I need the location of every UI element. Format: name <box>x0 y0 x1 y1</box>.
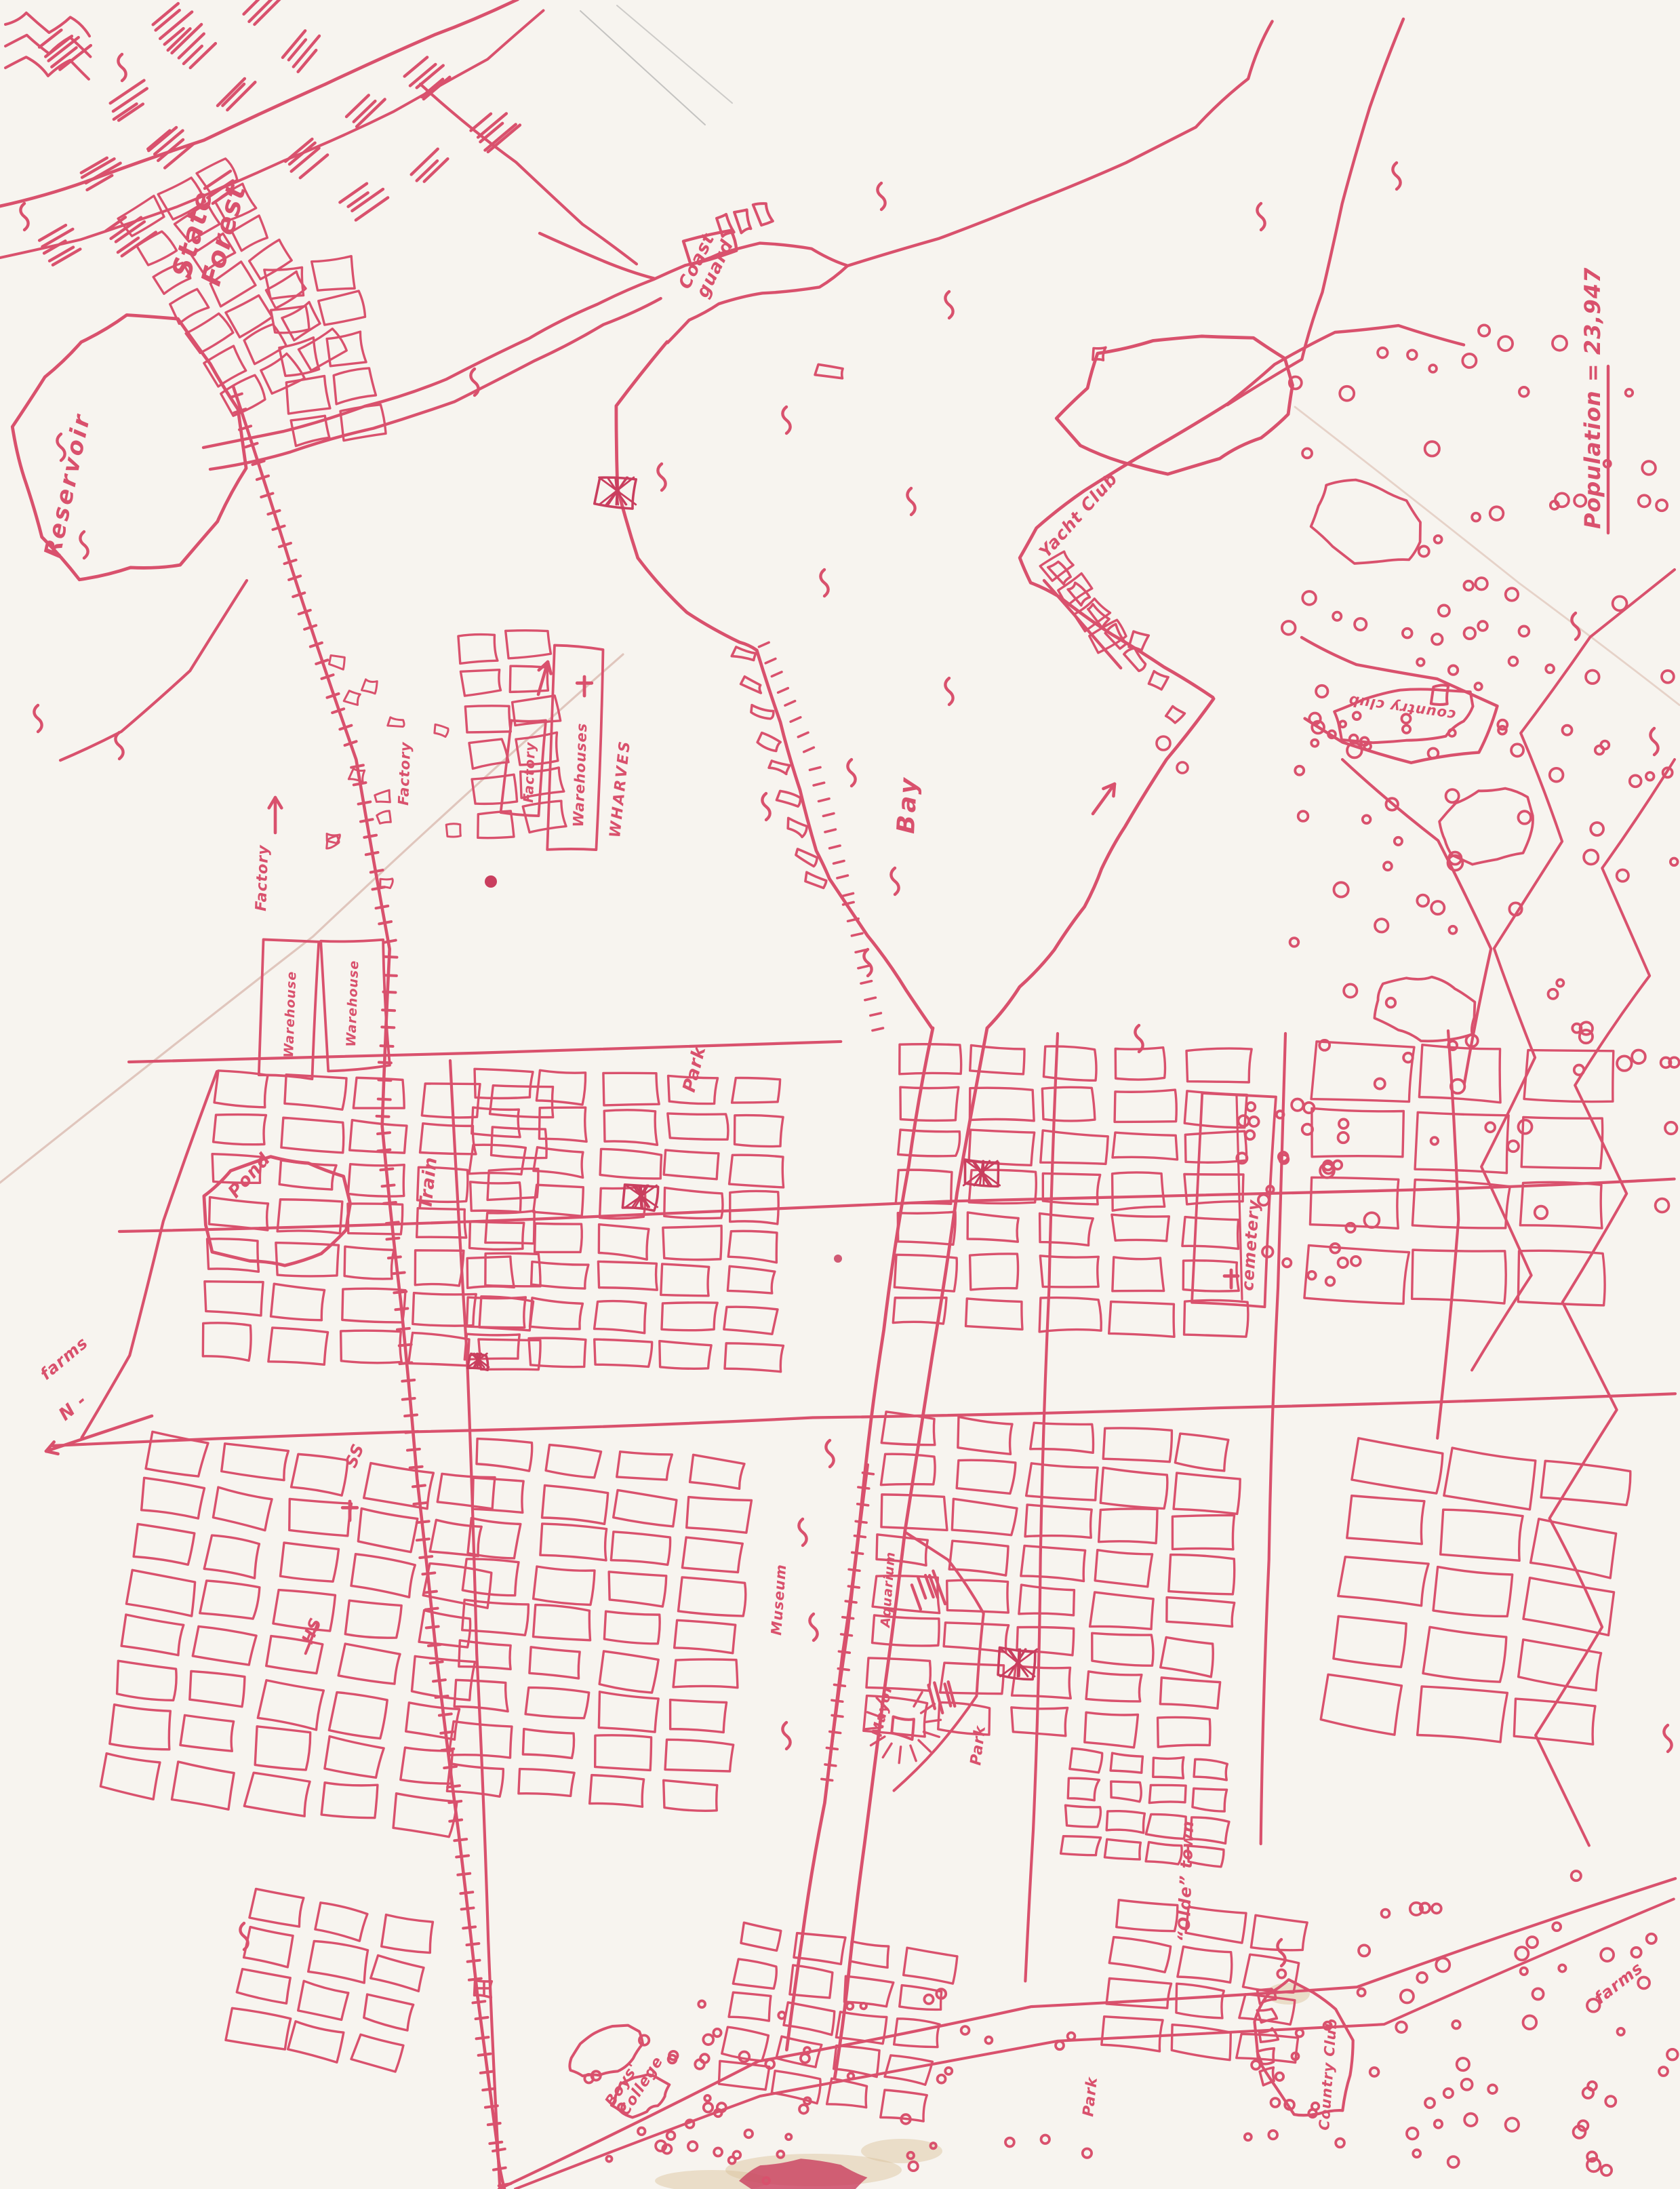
map-label-factory-west: Factory <box>253 844 272 912</box>
paper-background <box>0 0 1680 2189</box>
map-label-factory-boxed: Factory <box>520 741 538 803</box>
hand-drawn-town-map: StateForestCoastguardReservoirPopulation… <box>0 0 1680 2189</box>
map-label-warehouse-2: Warehouse <box>344 960 361 1047</box>
map-label-factory-mid: Factory <box>395 741 414 806</box>
map-label-population: Population = 23,947 <box>1580 267 1605 529</box>
map-label-warehouse-1: Warehouse <box>281 970 299 1058</box>
map-label-bay: Bay <box>892 774 923 834</box>
